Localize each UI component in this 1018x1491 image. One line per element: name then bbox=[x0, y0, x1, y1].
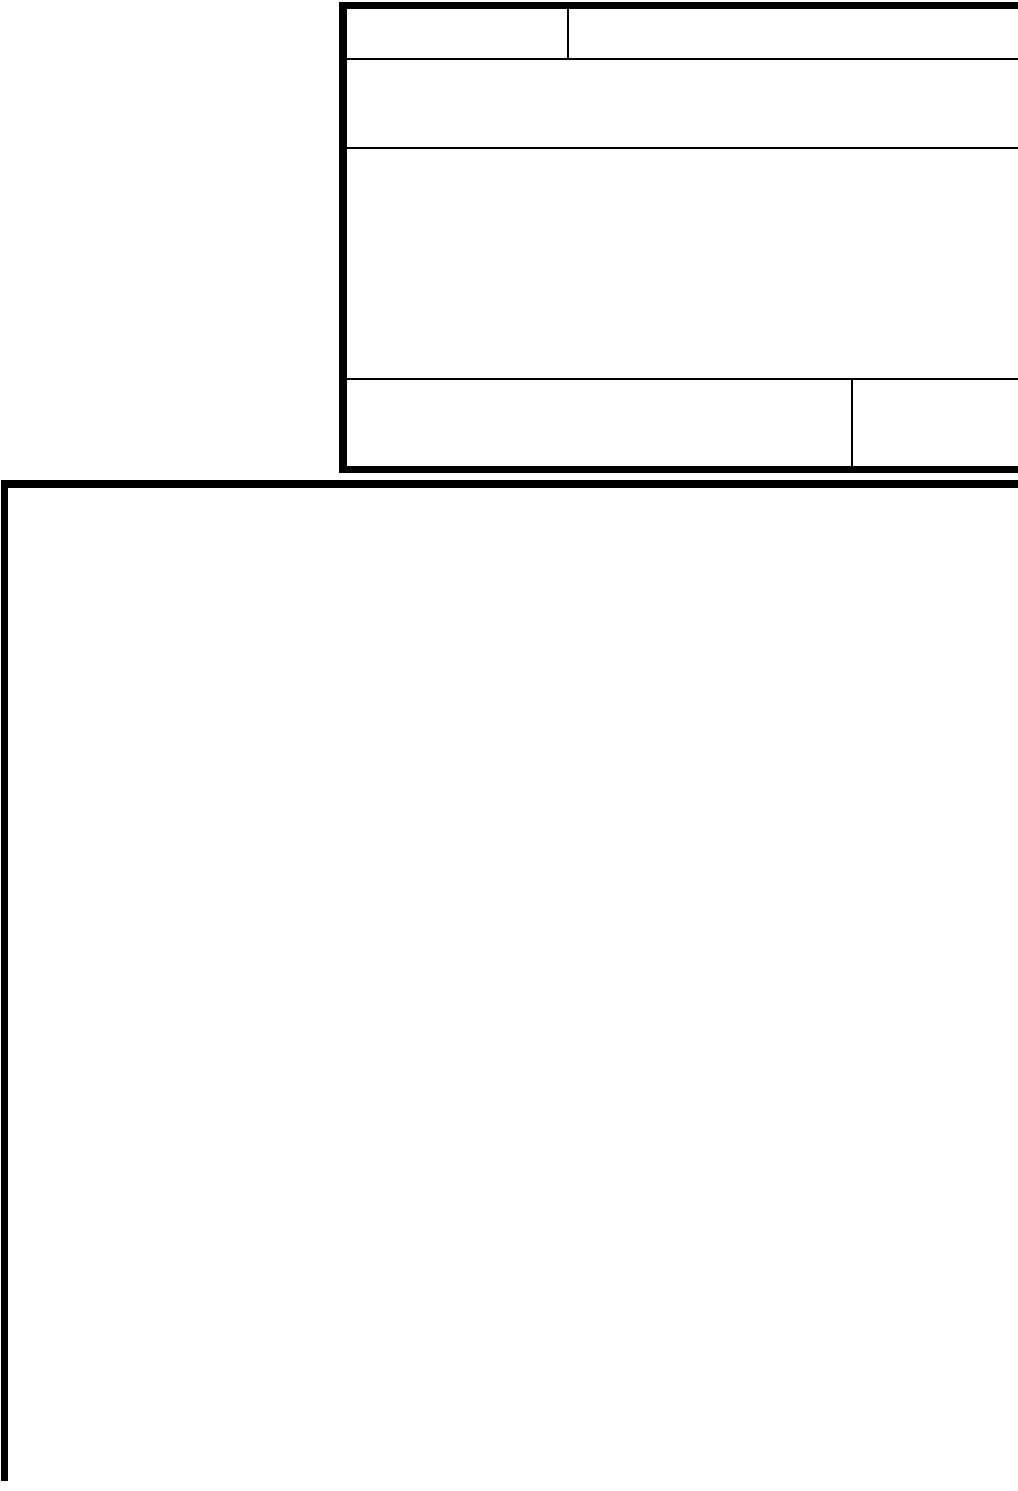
header-table-row1-cell-left bbox=[347, 9, 569, 58]
header-table-row-2 bbox=[347, 60, 1018, 149]
header-table-row1-cell-right bbox=[569, 9, 1018, 58]
header-table-row-4 bbox=[347, 380, 1018, 466]
header-table-row3-cell bbox=[347, 149, 1018, 378]
header-table-row4-cell-left bbox=[347, 380, 853, 466]
header-table-row-1 bbox=[347, 9, 1018, 60]
header-table bbox=[339, 2, 1018, 473]
scanned-form-page bbox=[0, 0, 1018, 1491]
header-table-row-3 bbox=[347, 149, 1018, 380]
main-content-box-area bbox=[8, 488, 1018, 1481]
main-content-box bbox=[1, 480, 1018, 1481]
header-table-row4-cell-right bbox=[853, 380, 1018, 466]
header-table-row2-cell bbox=[347, 60, 1018, 147]
